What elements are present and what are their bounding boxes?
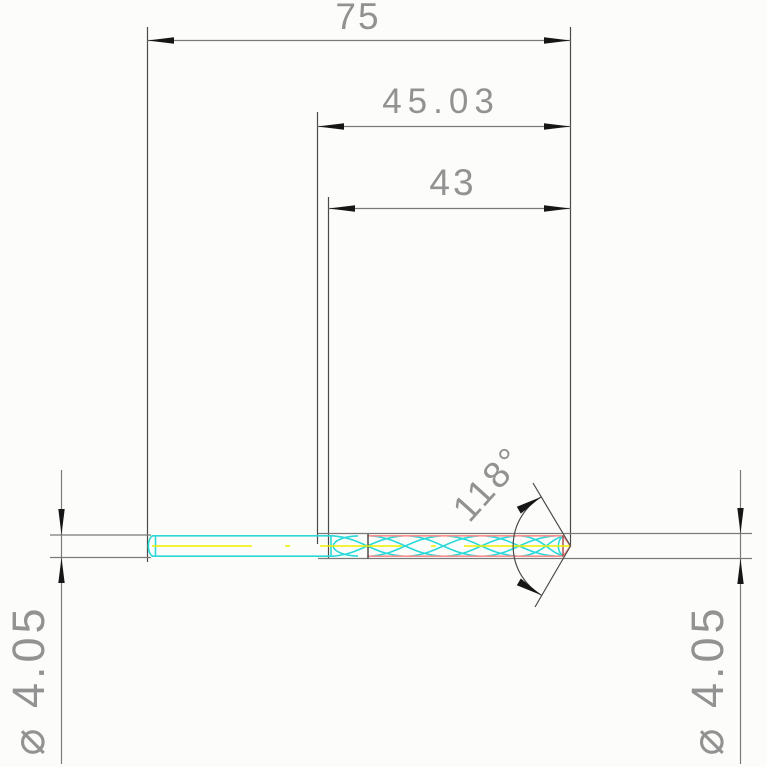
dimension-text-43: 43 — [429, 162, 476, 203]
drill-technical-drawing: 75 45.03 43 118° ⌀ 4.05 ⌀ 4.05 — [0, 0, 767, 767]
dimension-text-45-03: 45.03 — [382, 82, 500, 121]
dimension-text-75: 75 — [335, 0, 380, 37]
dimension-text-diameter-left: ⌀ 4.05 — [3, 604, 54, 755]
cad-drawing-canvas: 75 45.03 43 118° ⌀ 4.05 ⌀ 4.05 — [0, 0, 767, 767]
dimension-text-diameter-right: ⌀ 4.05 — [682, 604, 733, 755]
